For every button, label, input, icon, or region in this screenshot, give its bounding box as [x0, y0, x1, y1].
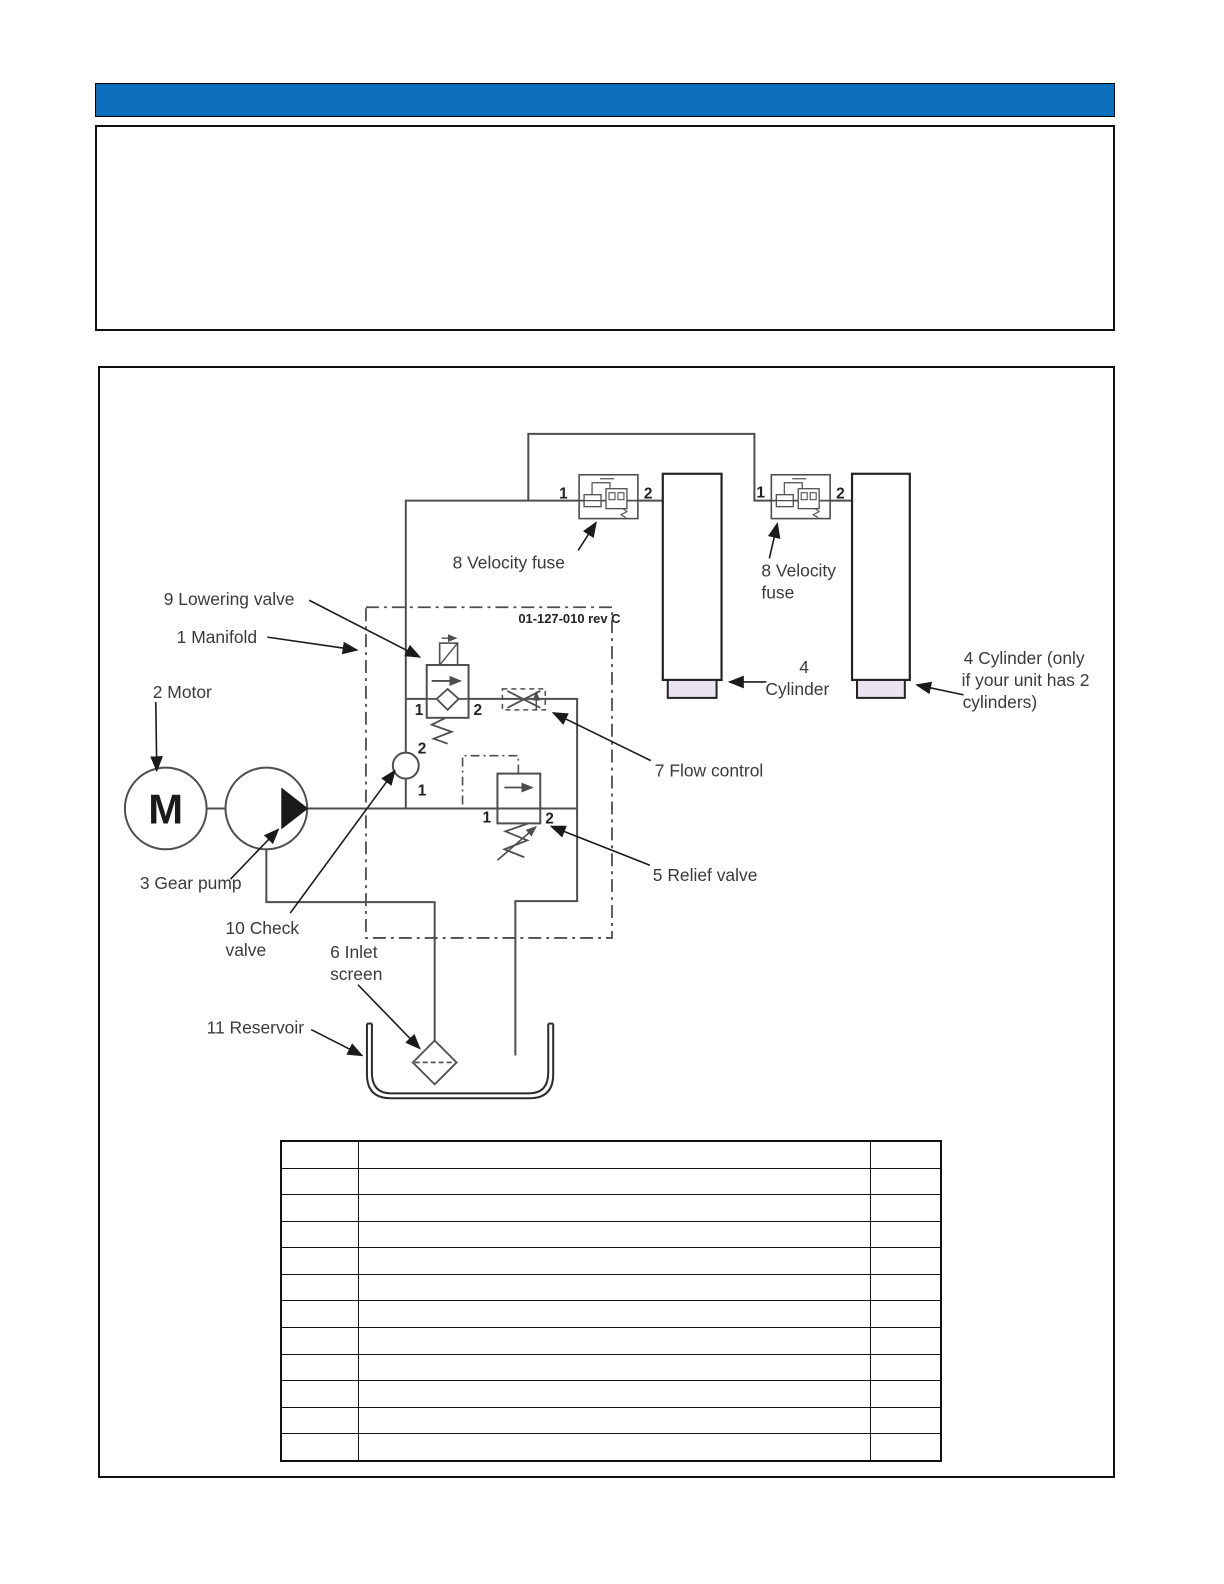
velocity-fuse-2-symbol	[771, 475, 830, 519]
table-cell	[281, 1381, 358, 1408]
table-cell	[870, 1141, 941, 1168]
velocity-fuse-left-label: 8 Velocity fuse	[453, 552, 565, 572]
lowering-valve-arrow	[309, 600, 420, 657]
table-cell	[358, 1248, 870, 1275]
table-cell	[281, 1301, 358, 1328]
table-cell	[358, 1407, 870, 1434]
table-row	[281, 1248, 941, 1275]
table-cell	[358, 1354, 870, 1381]
table-cell	[281, 1221, 358, 1248]
table-row	[281, 1407, 941, 1434]
table-row	[281, 1168, 941, 1195]
table-cell	[358, 1195, 870, 1222]
table-cell	[281, 1274, 358, 1301]
table-row	[281, 1328, 941, 1355]
velocity-fuse-right-arrow	[769, 524, 777, 559]
lowering-valve-label: 9 Lowering valve	[164, 589, 295, 609]
table-cell	[870, 1381, 941, 1408]
lowering-valve-port1: 1	[415, 702, 424, 719]
table-cell	[281, 1168, 358, 1195]
pressure-riser-line	[406, 501, 579, 809]
lowering-valve-port2: 2	[474, 702, 483, 719]
table-cell	[870, 1328, 941, 1355]
cylinder1-label-line1: 4	[799, 657, 809, 677]
table-row	[281, 1381, 941, 1408]
table-cell	[870, 1301, 941, 1328]
table-row	[281, 1274, 941, 1301]
parts-table-body	[281, 1141, 941, 1461]
table-cell	[870, 1168, 941, 1195]
flow-control-arrow	[553, 713, 651, 761]
fuse1-port2: 2	[644, 486, 653, 503]
cylinder-1-symbol	[663, 474, 722, 698]
table-cell	[870, 1248, 941, 1275]
table-row	[281, 1301, 941, 1328]
table-row	[281, 1141, 941, 1168]
manifold-arrow	[267, 637, 357, 650]
motor-symbol: M	[125, 768, 207, 850]
table-cell	[281, 1354, 358, 1381]
pump-symbol	[226, 768, 309, 850]
table-cell	[870, 1354, 941, 1381]
reservoir-arrow	[311, 1030, 362, 1056]
table-cell	[870, 1274, 941, 1301]
cylinder2-label-line1: 4 Cylinder (only	[964, 648, 1085, 668]
reservoir-label: 11 Reservoir	[207, 1018, 305, 1038]
check-valve-label-line2: valve	[226, 940, 267, 960]
reservoir-symbol	[367, 1024, 553, 1099]
return-line	[469, 699, 578, 1056]
fuse2-port2: 2	[836, 486, 845, 503]
table-cell	[281, 1407, 358, 1434]
velocity-fuse-left-arrow	[578, 523, 596, 551]
manifold-label: 1 Manifold	[177, 627, 257, 647]
inlet-screen-label-line2: screen	[330, 964, 382, 984]
table-row	[281, 1221, 941, 1248]
check-valve-port1: 1	[418, 782, 427, 799]
gear-pump-label: 3 Gear pump	[140, 873, 242, 893]
cylinder1-label-line2: Cylinder	[765, 679, 829, 699]
motor-letter: M	[148, 785, 183, 832]
lowering-valve-symbol	[427, 638, 469, 744]
relief-valve-port2: 2	[545, 810, 554, 827]
table-cell	[358, 1301, 870, 1328]
table-cell	[281, 1328, 358, 1355]
cylinder2-label-line2: if your unit has 2	[962, 670, 1090, 690]
table-cell	[358, 1381, 870, 1408]
relief-valve-label: 5 Relief valve	[653, 865, 758, 885]
table-cell	[870, 1195, 941, 1222]
table-cell	[870, 1407, 941, 1434]
cylinder2-arrow	[917, 685, 964, 695]
table-cell	[358, 1434, 870, 1461]
table-cell	[358, 1274, 870, 1301]
check-valve-arrow	[290, 771, 395, 913]
hydraulic-lines	[207, 434, 852, 1056]
table-cell	[358, 1221, 870, 1248]
table-cell	[358, 1168, 870, 1195]
parts-table	[280, 1140, 942, 1462]
velocity-fuse-right-label-line1: 8 Velocity	[761, 560, 836, 580]
table-row	[281, 1354, 941, 1381]
flow-control-label: 7 Flow control	[655, 761, 763, 781]
manual-page: M	[0, 0, 1224, 1584]
table-cell	[281, 1434, 358, 1461]
header-bar	[95, 83, 1115, 117]
table-cell	[358, 1141, 870, 1168]
inlet-screen-label-line1: 6 Inlet	[330, 942, 378, 962]
motor-arrow	[156, 702, 157, 771]
cylinder2-label-line3: cylinders)	[963, 692, 1038, 712]
table-cell	[281, 1141, 358, 1168]
check-valve-symbol	[393, 753, 419, 779]
relief-valve-symbol	[497, 774, 540, 861]
table-cell	[281, 1195, 358, 1222]
check-valve-label-line1: 10 Check	[226, 918, 300, 938]
check-valve-port2: 2	[418, 741, 427, 758]
relief-valve-port1: 1	[482, 809, 491, 826]
velocity-fuse-1-symbol	[579, 475, 638, 519]
table-cell	[358, 1328, 870, 1355]
notes-box	[95, 125, 1115, 331]
table-cell	[870, 1434, 941, 1461]
table-row	[281, 1195, 941, 1222]
velocity-fuse-right-label-line2: fuse	[761, 582, 794, 602]
cylinder-2-symbol	[852, 474, 910, 698]
table-row	[281, 1434, 941, 1461]
fuse2-port1: 1	[756, 485, 765, 502]
motor-label: 2 Motor	[153, 682, 212, 702]
table-cell	[281, 1248, 358, 1275]
fuse1-port1: 1	[559, 486, 568, 503]
drawing-number: 01-127-010 rev C	[518, 611, 620, 626]
table-cell	[870, 1221, 941, 1248]
relief-valve-arrow	[551, 826, 650, 865]
